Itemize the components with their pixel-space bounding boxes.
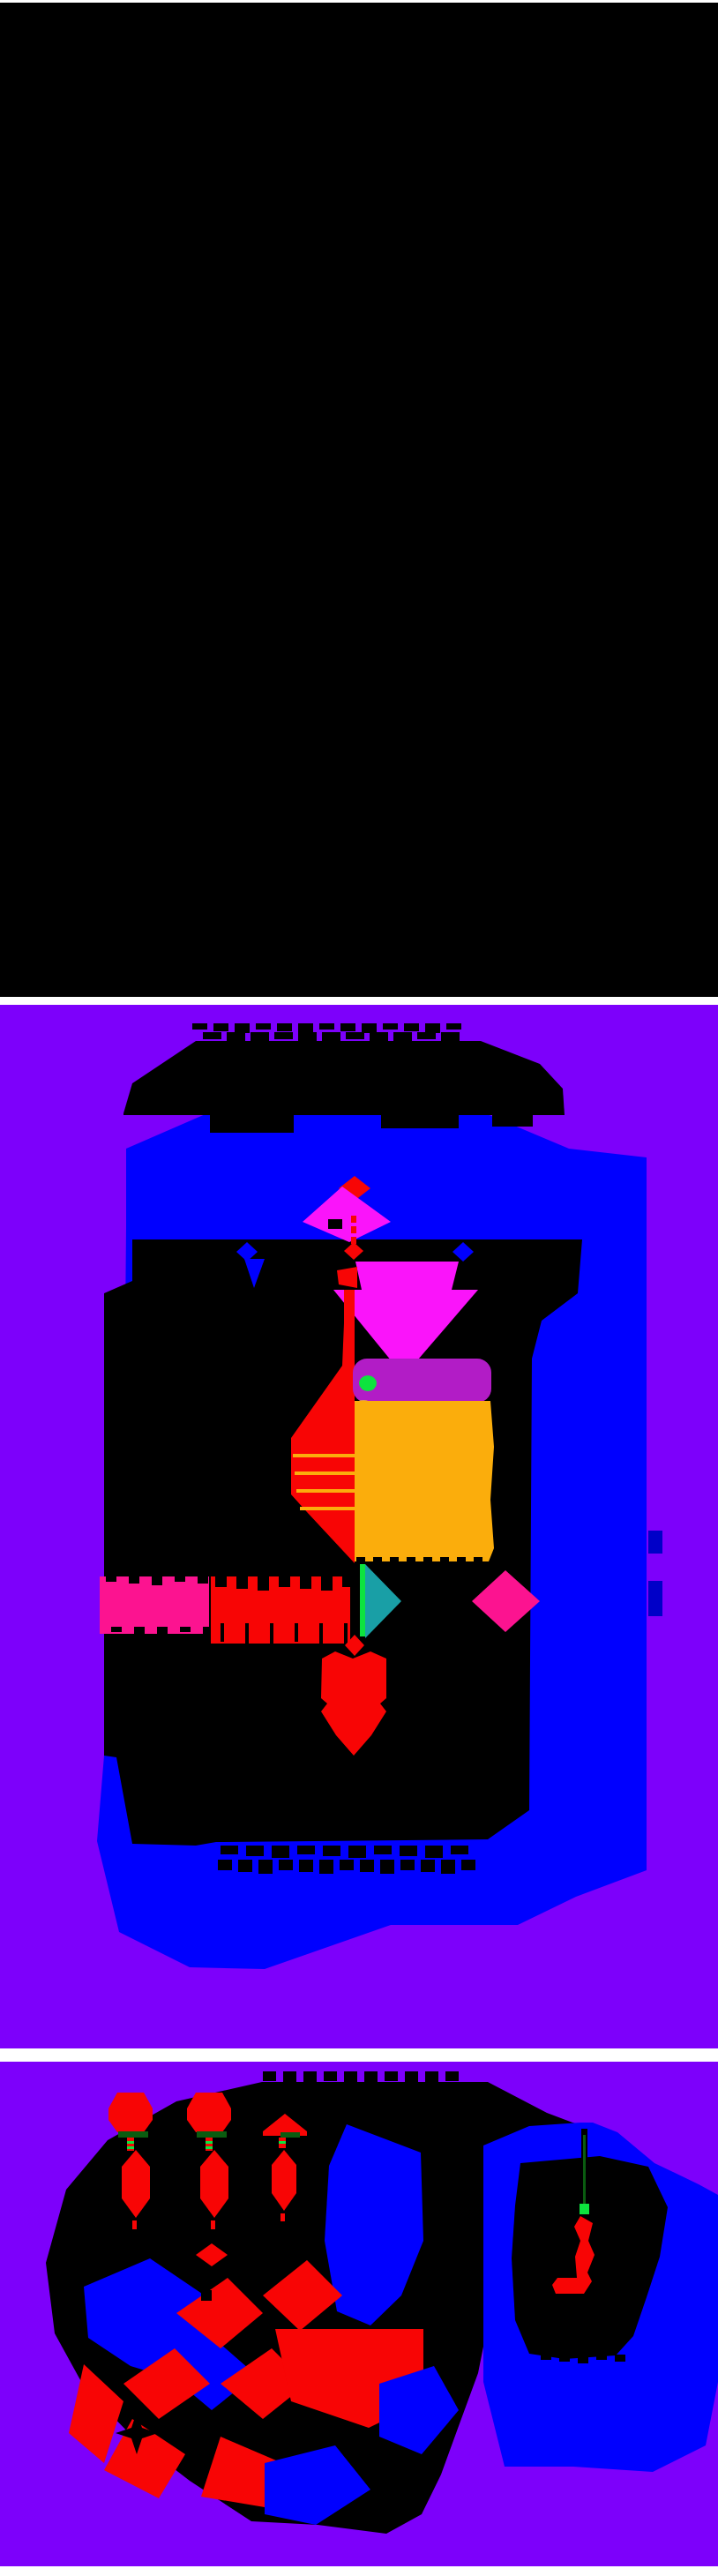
- red-block-teeth-bottom-dash-0: [221, 1623, 224, 1642]
- top-glyph-row-2-dash-4: [298, 1032, 317, 1041]
- black-h-glyph: [201, 2290, 212, 2301]
- bottom-glyph-row-1-dash-1: [246, 1846, 264, 1856]
- bottom-glyph-row-1-dash-9: [451, 1846, 468, 1854]
- tower1-stem-stripe-2: [127, 2146, 134, 2149]
- top-glyph-row-1-dash-6: [319, 1023, 334, 1030]
- top-black-panel: [0, 3, 718, 997]
- pink-band-teeth-top-dash-3: [175, 1576, 185, 1582]
- tower2-tick: [211, 2220, 215, 2229]
- teeth-under-amber-dash-6: [457, 1557, 466, 1566]
- tower3-tick: [280, 2213, 285, 2221]
- pink-band-teeth-top-dash-0: [106, 1576, 116, 1582]
- red-block-teeth-top-dash-4: [300, 1576, 311, 1589]
- red-block-teeth-top-dash-3: [279, 1576, 290, 1587]
- top-glyph-row-2-dash-7: [370, 1032, 388, 1041]
- red-block-teeth-bottom-dash-4: [319, 1623, 323, 1644]
- red-block-teeth-top-dash-5: [321, 1576, 333, 1591]
- bottom-glyph-row-2-dash-0: [218, 1860, 232, 1870]
- pink-band-teeth-top-dash-4: [198, 1576, 208, 1584]
- top-glyph-row-2-dash-3: [274, 1032, 293, 1039]
- pink-band-teeth-bottom-dash-3: [180, 1627, 191, 1632]
- top-glyph-row-dash-1: [283, 2071, 296, 2083]
- bottom-glyph-row-2-dash-3: [279, 1860, 293, 1870]
- bottom-glyph-row-2-dash-4: [299, 1860, 313, 1872]
- top-glyph-row-1-dash-5: [298, 1023, 313, 1033]
- bottom-glyph-row-1-dash-5: [348, 1846, 366, 1858]
- bottom-glyph-row-1-dash-7: [400, 1846, 417, 1856]
- red-block-teeth-top-dash-2: [258, 1576, 269, 1591]
- top-glyph-row-1-dash-12: [446, 1023, 461, 1030]
- right-glyph-marks-dash-2: [578, 2355, 588, 2363]
- pink-band-teeth-top-dash-1: [129, 1576, 139, 1584]
- top-glyph-row-1-dash-1: [213, 1023, 228, 1031]
- pink-band-teeth-bottom-dash-2: [157, 1627, 168, 1636]
- black-bump-1: [210, 1115, 294, 1133]
- medblue-mark-2: [648, 1581, 662, 1616]
- right-glyph-marks-dash-3: [596, 2355, 607, 2360]
- column-glyph-n: [328, 1219, 342, 1229]
- bottom-glyph-row-2-dash-9: [400, 1860, 415, 1870]
- right-glyph-marks-dash-4: [615, 2355, 625, 2362]
- pink-band-teeth-bottom-dash-0: [111, 1627, 122, 1632]
- red-block-teeth-bottom-dash-3: [295, 1623, 298, 1642]
- top-glyph-row-1-dash-4: [277, 1023, 292, 1031]
- bottom-glyph-row-2-dash-12: [461, 1860, 475, 1870]
- medblue-mark-1: [648, 1531, 662, 1554]
- black-bump-3: [492, 1115, 533, 1127]
- tower2-bar: [197, 2131, 227, 2138]
- orange-stripe-4: [300, 1507, 355, 1510]
- bottom-glyph-row-1-dash-4: [323, 1846, 340, 1856]
- orange-stripe-1: [293, 1454, 355, 1457]
- tower3-stem-stripe: [279, 2141, 286, 2144]
- teeth-under-amber-dash-5: [440, 1557, 449, 1569]
- red-block-teeth-bottom-dash-1: [245, 1623, 249, 1644]
- bottom-glyph-row-1-dash-3: [297, 1846, 315, 1854]
- red-block-teeth-bottom-dash-2: [270, 1623, 273, 1645]
- red-block-teeth-bottom-dash-5: [344, 1623, 348, 1645]
- teeth-under-amber-dash-2: [390, 1557, 399, 1569]
- orange-stripe-2: [295, 1471, 355, 1475]
- top-glyph-row-2-dash-6: [346, 1032, 364, 1039]
- top-glyph-row-1-dash-3: [256, 1023, 271, 1030]
- top-glyph-row-dash-8: [425, 2071, 438, 2085]
- top-glyph-row-2-dash-1: [227, 1032, 245, 1041]
- top-glyph-row-dash-7: [405, 2071, 418, 2083]
- bottom-glyph-row-1-dash-2: [272, 1846, 289, 1858]
- tower1-bar: [118, 2131, 148, 2138]
- top-glyph-row-1-dash-8: [362, 1023, 377, 1033]
- top-glyph-row-1-dash-9: [383, 1023, 398, 1030]
- top-glyph-row-1-dash-0: [192, 1023, 207, 1030]
- bottom-glyph-row-1-dash-8: [425, 1846, 443, 1858]
- bottom-glyph-row-1-dash-6: [374, 1846, 392, 1854]
- bottom-glyph-row-1-dash-0: [221, 1846, 238, 1854]
- bottom-glyph-row-2-dash-6: [340, 1860, 354, 1870]
- top-glyph-row-2-dash-0: [203, 1032, 221, 1039]
- top-glyph-row-dash-4: [344, 2071, 357, 2083]
- top-glyph-row-dash-0: [263, 2071, 276, 2081]
- top-glyph-row-2-dash-10: [441, 1032, 460, 1041]
- posterized-image-stage: [0, 0, 718, 2576]
- top-glyph-row-dash-3: [324, 2071, 337, 2081]
- bottom-glyph-row-2-dash-11: [441, 1860, 455, 1874]
- bottom-abstract-panel: [0, 2062, 718, 2566]
- teeth-under-amber-dash-1: [373, 1557, 382, 1568]
- top-glyph-row-dash-2: [303, 2071, 317, 2085]
- pink-band-teeth-top-dash-2: [152, 1576, 162, 1585]
- pink-band-teeth-bottom-dash-1: [134, 1627, 145, 1634]
- red-block-teeth-top-dash-0: [215, 1576, 227, 1587]
- column-red-dash-2: [351, 1226, 356, 1233]
- teeth-under-amber-dash-4: [423, 1557, 432, 1568]
- top-glyph-row-2-dash-2: [251, 1032, 269, 1043]
- red-block-teeth-top-dash-6: [342, 1576, 354, 1587]
- top-glyph-row-1-dash-7: [340, 1023, 355, 1031]
- right-glyph-marks-dash-0: [541, 2355, 551, 2360]
- top-glyph-row-1-dash-10: [404, 1023, 419, 1031]
- green-line: [360, 1564, 365, 1636]
- bottom-glyph-row-2-dash-8: [380, 1860, 394, 1874]
- orange-stripe-3: [296, 1489, 355, 1493]
- top-glyph-row-dash-5: [364, 2071, 378, 2085]
- green-dot: [359, 1375, 377, 1391]
- teeth-under-amber-dash-7: [474, 1557, 482, 1568]
- black-top-band: [123, 1041, 565, 1115]
- right-glyph-marks-dash-1: [559, 2355, 570, 2362]
- bottom-glyph-row-2-dash-5: [319, 1860, 333, 1874]
- tower3-bar: [280, 2132, 300, 2138]
- tower1-tick: [132, 2220, 137, 2229]
- bottom-glyph-row-2-dash-1: [238, 1860, 252, 1872]
- column-magenta-row: [355, 1262, 459, 1290]
- teeth-under-amber-dash-3: [407, 1557, 415, 1566]
- needle-core: [583, 2135, 586, 2210]
- red-block-teeth-top-dash-1: [236, 1576, 248, 1589]
- bottom-glyph-row-2-dash-10: [421, 1860, 435, 1872]
- top-glyph-row-dash-9: [445, 2071, 459, 2081]
- tower2-stem-stripe-1: [206, 2141, 213, 2144]
- needle-connector: [580, 2204, 589, 2214]
- column-red-dash-1: [351, 1216, 356, 1223]
- top-glyph-row-2-dash-9: [417, 1032, 436, 1039]
- tower1-cap: [108, 2093, 153, 2132]
- top-glyph-row-1-dash-2: [235, 1023, 250, 1033]
- tower1-stem-stripe-1: [127, 2141, 134, 2144]
- black-bump-2: [381, 1115, 459, 1128]
- tower2-cap: [187, 2093, 231, 2132]
- top-glyph-row-1-dash-11: [425, 1023, 440, 1033]
- top-glyph-row-2-dash-5: [322, 1032, 340, 1043]
- middle-abstract-panel: [0, 1005, 718, 2048]
- top-glyph-row-dash-6: [385, 2071, 398, 2081]
- top-glyph-row-2-dash-8: [393, 1032, 412, 1043]
- amber-rectangle: [355, 1401, 494, 1561]
- tower2-stem-stripe-2: [206, 2146, 213, 2149]
- bottom-glyph-row-2-dash-7: [360, 1860, 374, 1872]
- bottom-glyph-row-2-dash-2: [258, 1860, 273, 1874]
